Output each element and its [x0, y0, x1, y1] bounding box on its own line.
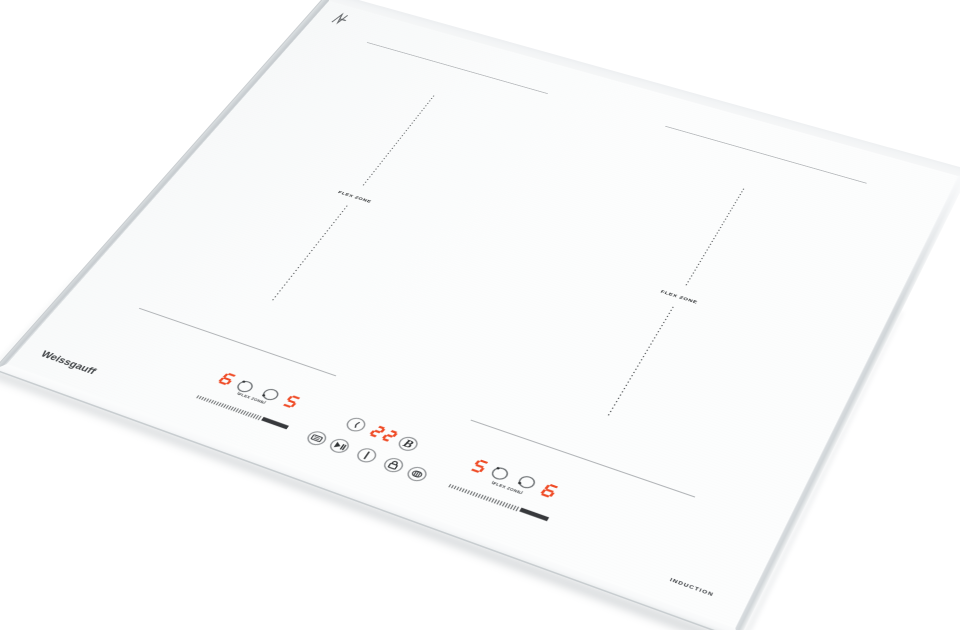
svg-text:Weissgauff: Weissgauff — [39, 349, 99, 376]
svg-text:FLEX ZONE: FLEX ZONE — [660, 289, 699, 305]
svg-text:FLEX ZONE: FLEX ZONE — [237, 392, 265, 405]
svg-text:FLEX ZONE: FLEX ZONE — [492, 481, 522, 495]
svg-text:FLEX ZONE: FLEX ZONE — [337, 190, 373, 204]
svg-text:INDUCTION: INDUCTION — [669, 576, 715, 597]
